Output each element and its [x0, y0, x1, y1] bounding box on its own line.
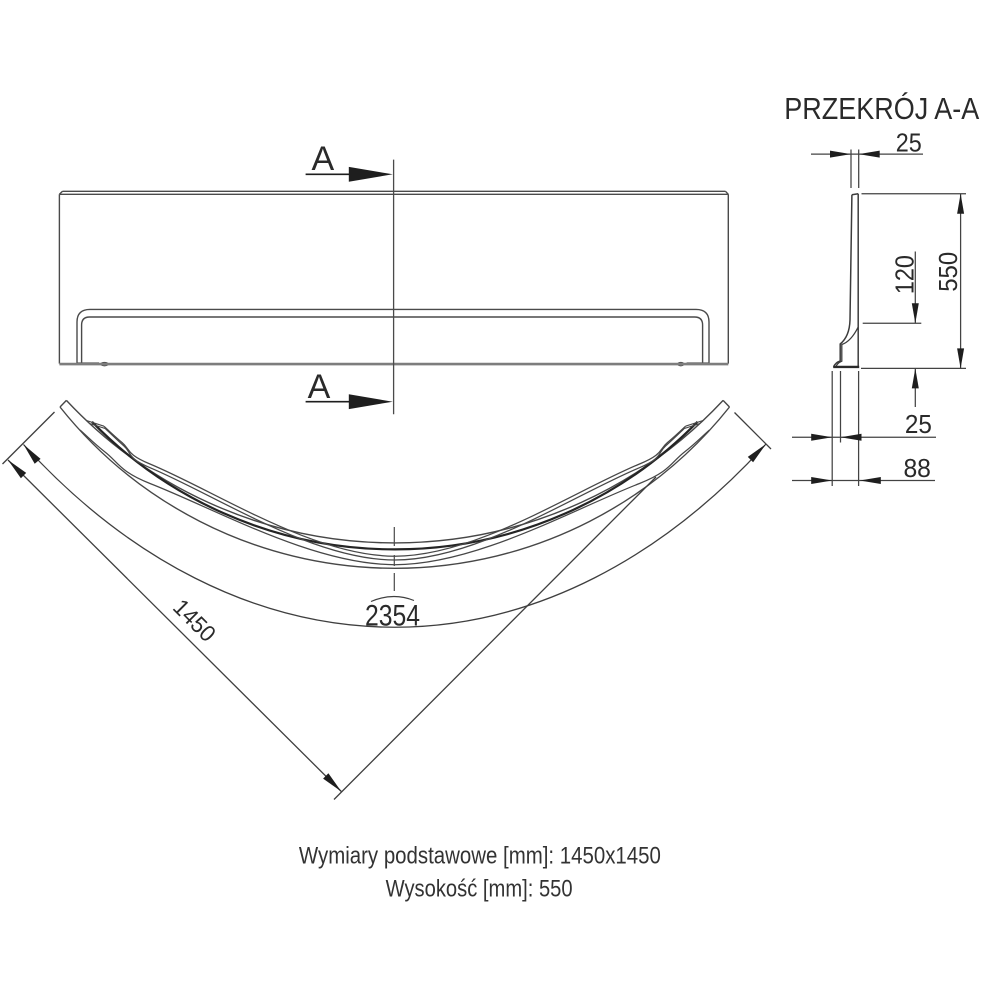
svg-text:A: A: [311, 140, 334, 178]
svg-text:88: 88: [903, 453, 931, 483]
svg-text:25: 25: [905, 409, 932, 439]
svg-text:A: A: [308, 368, 331, 406]
svg-text:Wymiary podstawowe [mm]: 1450x: Wymiary podstawowe [mm]: 1450x1450: [299, 843, 661, 870]
svg-text:120: 120: [889, 255, 919, 294]
svg-text:2354: 2354: [365, 600, 420, 633]
svg-text:550: 550: [933, 252, 963, 292]
svg-text:Wysokość [mm]: 550: Wysokość [mm]: 550: [386, 876, 573, 903]
svg-text:25: 25: [896, 128, 922, 158]
svg-text:PRZEKRÓJ A-A: PRZEKRÓJ A-A: [784, 91, 979, 126]
